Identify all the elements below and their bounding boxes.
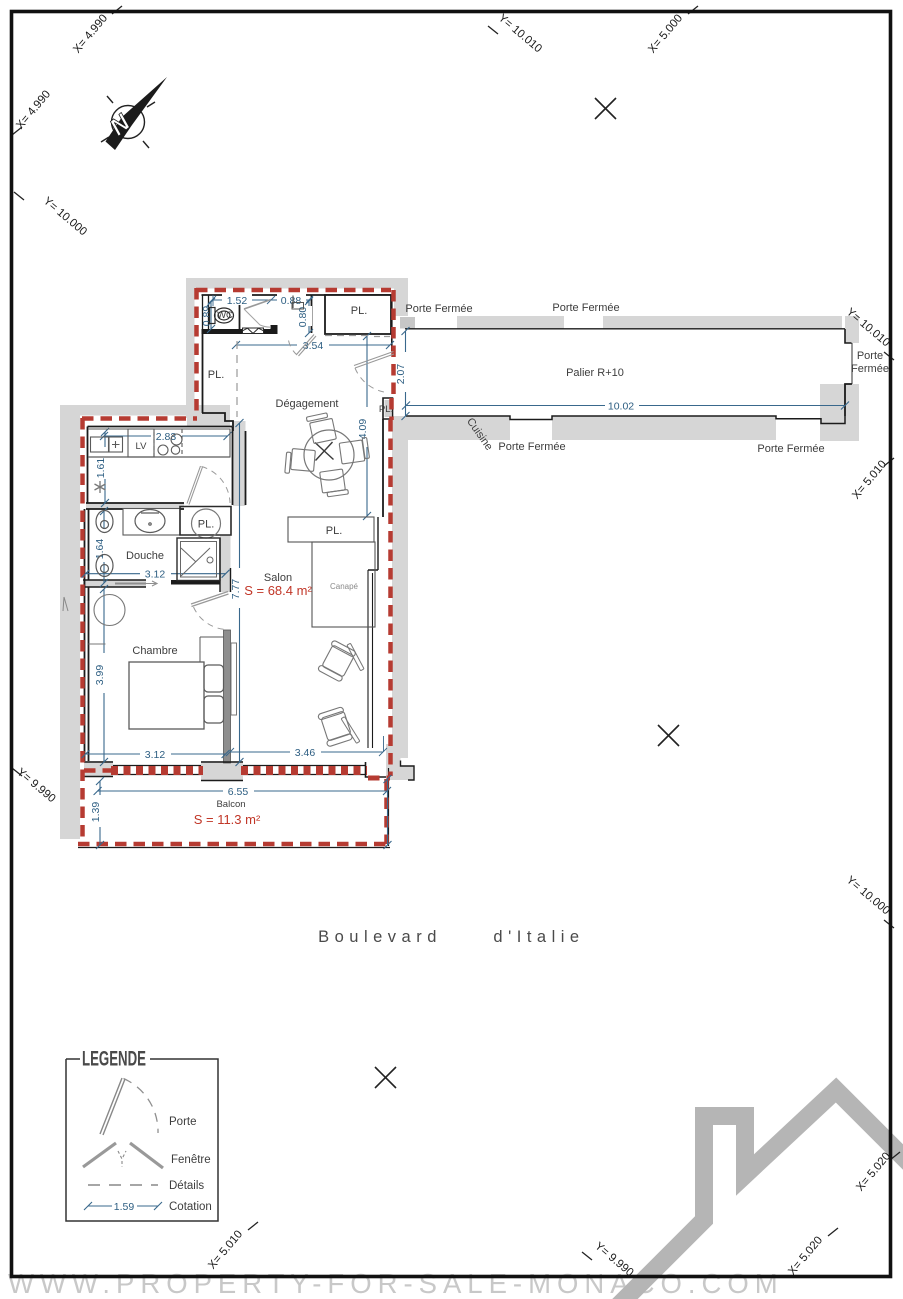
svg-text:Fermée: Fermée bbox=[851, 363, 889, 375]
svg-text:3.46: 3.46 bbox=[295, 747, 316, 759]
svg-text:Porte Fermée: Porte Fermée bbox=[757, 443, 824, 455]
svg-text:PL.: PL. bbox=[198, 519, 215, 531]
svg-text:7.77: 7.77 bbox=[230, 579, 242, 600]
svg-text:6.55: 6.55 bbox=[228, 786, 249, 798]
svg-text:Douche: Douche bbox=[126, 550, 164, 562]
svg-text:PL.: PL. bbox=[351, 305, 368, 317]
svg-text:Porte Fermée: Porte Fermée bbox=[405, 303, 472, 315]
svg-text:Porte: Porte bbox=[169, 1116, 197, 1128]
svg-text:Cotation: Cotation bbox=[169, 1201, 212, 1213]
svg-text:PL.: PL. bbox=[379, 404, 393, 415]
svg-text:Boulevard: Boulevard bbox=[318, 928, 442, 946]
svg-text:PL.: PL. bbox=[326, 525, 343, 537]
svg-text:PL.: PL. bbox=[208, 369, 225, 381]
svg-text:Balcon: Balcon bbox=[216, 799, 245, 810]
svg-text:Détails: Détails bbox=[169, 1180, 204, 1192]
svg-text:Canapé: Canapé bbox=[330, 582, 359, 591]
svg-text:0.80: 0.80 bbox=[297, 307, 309, 328]
svg-text:3.54: 3.54 bbox=[303, 340, 324, 352]
svg-text:WWW.PROPERTY-FOR-SALE-MONACO.C: WWW.PROPERTY-FOR-SALE-MONACO.COM bbox=[8, 1268, 784, 1299]
svg-text:3.99: 3.99 bbox=[94, 665, 106, 686]
svg-text:Dégagement: Dégagement bbox=[276, 398, 339, 410]
svg-text:WC: WC bbox=[217, 310, 233, 321]
svg-text:4.09: 4.09 bbox=[357, 419, 369, 440]
svg-text:2.07: 2.07 bbox=[395, 364, 407, 385]
svg-text:LV: LV bbox=[136, 441, 148, 452]
svg-text:1.39: 1.39 bbox=[90, 802, 102, 823]
svg-text:3.12: 3.12 bbox=[145, 749, 166, 761]
svg-text:S = 11.3 m²: S = 11.3 m² bbox=[194, 812, 261, 827]
svg-text:Chambre: Chambre bbox=[132, 645, 177, 657]
svg-text:1.52: 1.52 bbox=[227, 295, 248, 307]
svg-text:LEGENDE: LEGENDE bbox=[82, 1048, 146, 1071]
svg-text:Palier R+10: Palier R+10 bbox=[566, 367, 624, 379]
svg-text:1.61: 1.61 bbox=[95, 458, 107, 479]
svg-text:Fenêtre: Fenêtre bbox=[171, 1154, 211, 1166]
svg-text:d'Italie: d'Italie bbox=[493, 928, 584, 946]
svg-text:Porte Fermée: Porte Fermée bbox=[498, 441, 565, 453]
svg-text:0.88: 0.88 bbox=[281, 295, 302, 307]
svg-text:3.12: 3.12 bbox=[145, 569, 166, 581]
svg-text:10.02: 10.02 bbox=[608, 401, 634, 413]
svg-text:Porte: Porte bbox=[857, 350, 883, 362]
svg-text:2.83: 2.83 bbox=[156, 431, 177, 443]
svg-text:Porte Fermée: Porte Fermée bbox=[552, 302, 619, 314]
svg-text:1.59: 1.59 bbox=[114, 1201, 135, 1213]
svg-text:S = 68.4 m²: S = 68.4 m² bbox=[244, 583, 312, 598]
